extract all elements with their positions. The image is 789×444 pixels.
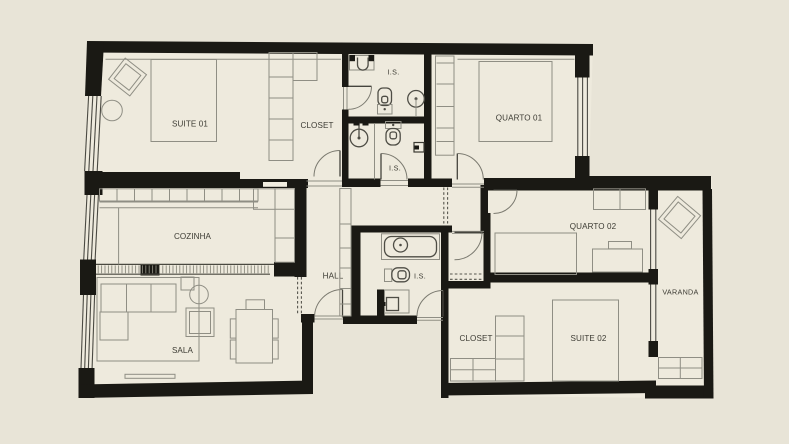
svg-text:SUITE 01: SUITE 01	[172, 120, 208, 129]
svg-text:SUITE 02: SUITE 02	[571, 334, 607, 343]
svg-text:CLOSET: CLOSET	[301, 121, 334, 130]
svg-text:QUARTO 01: QUARTO 01	[496, 114, 543, 123]
svg-text:I.S.: I.S.	[389, 164, 401, 173]
svg-text:QUARTO 02: QUARTO 02	[570, 222, 617, 231]
svg-text:CLOSET: CLOSET	[460, 334, 493, 343]
svg-text:I.S.: I.S.	[388, 68, 400, 77]
svg-text:HALL: HALL	[323, 272, 344, 281]
svg-text:COZINHA: COZINHA	[174, 232, 212, 241]
svg-text:SALA: SALA	[172, 346, 194, 355]
svg-text:VARANDA: VARANDA	[662, 288, 698, 297]
svg-text:I.S.: I.S.	[414, 272, 426, 281]
